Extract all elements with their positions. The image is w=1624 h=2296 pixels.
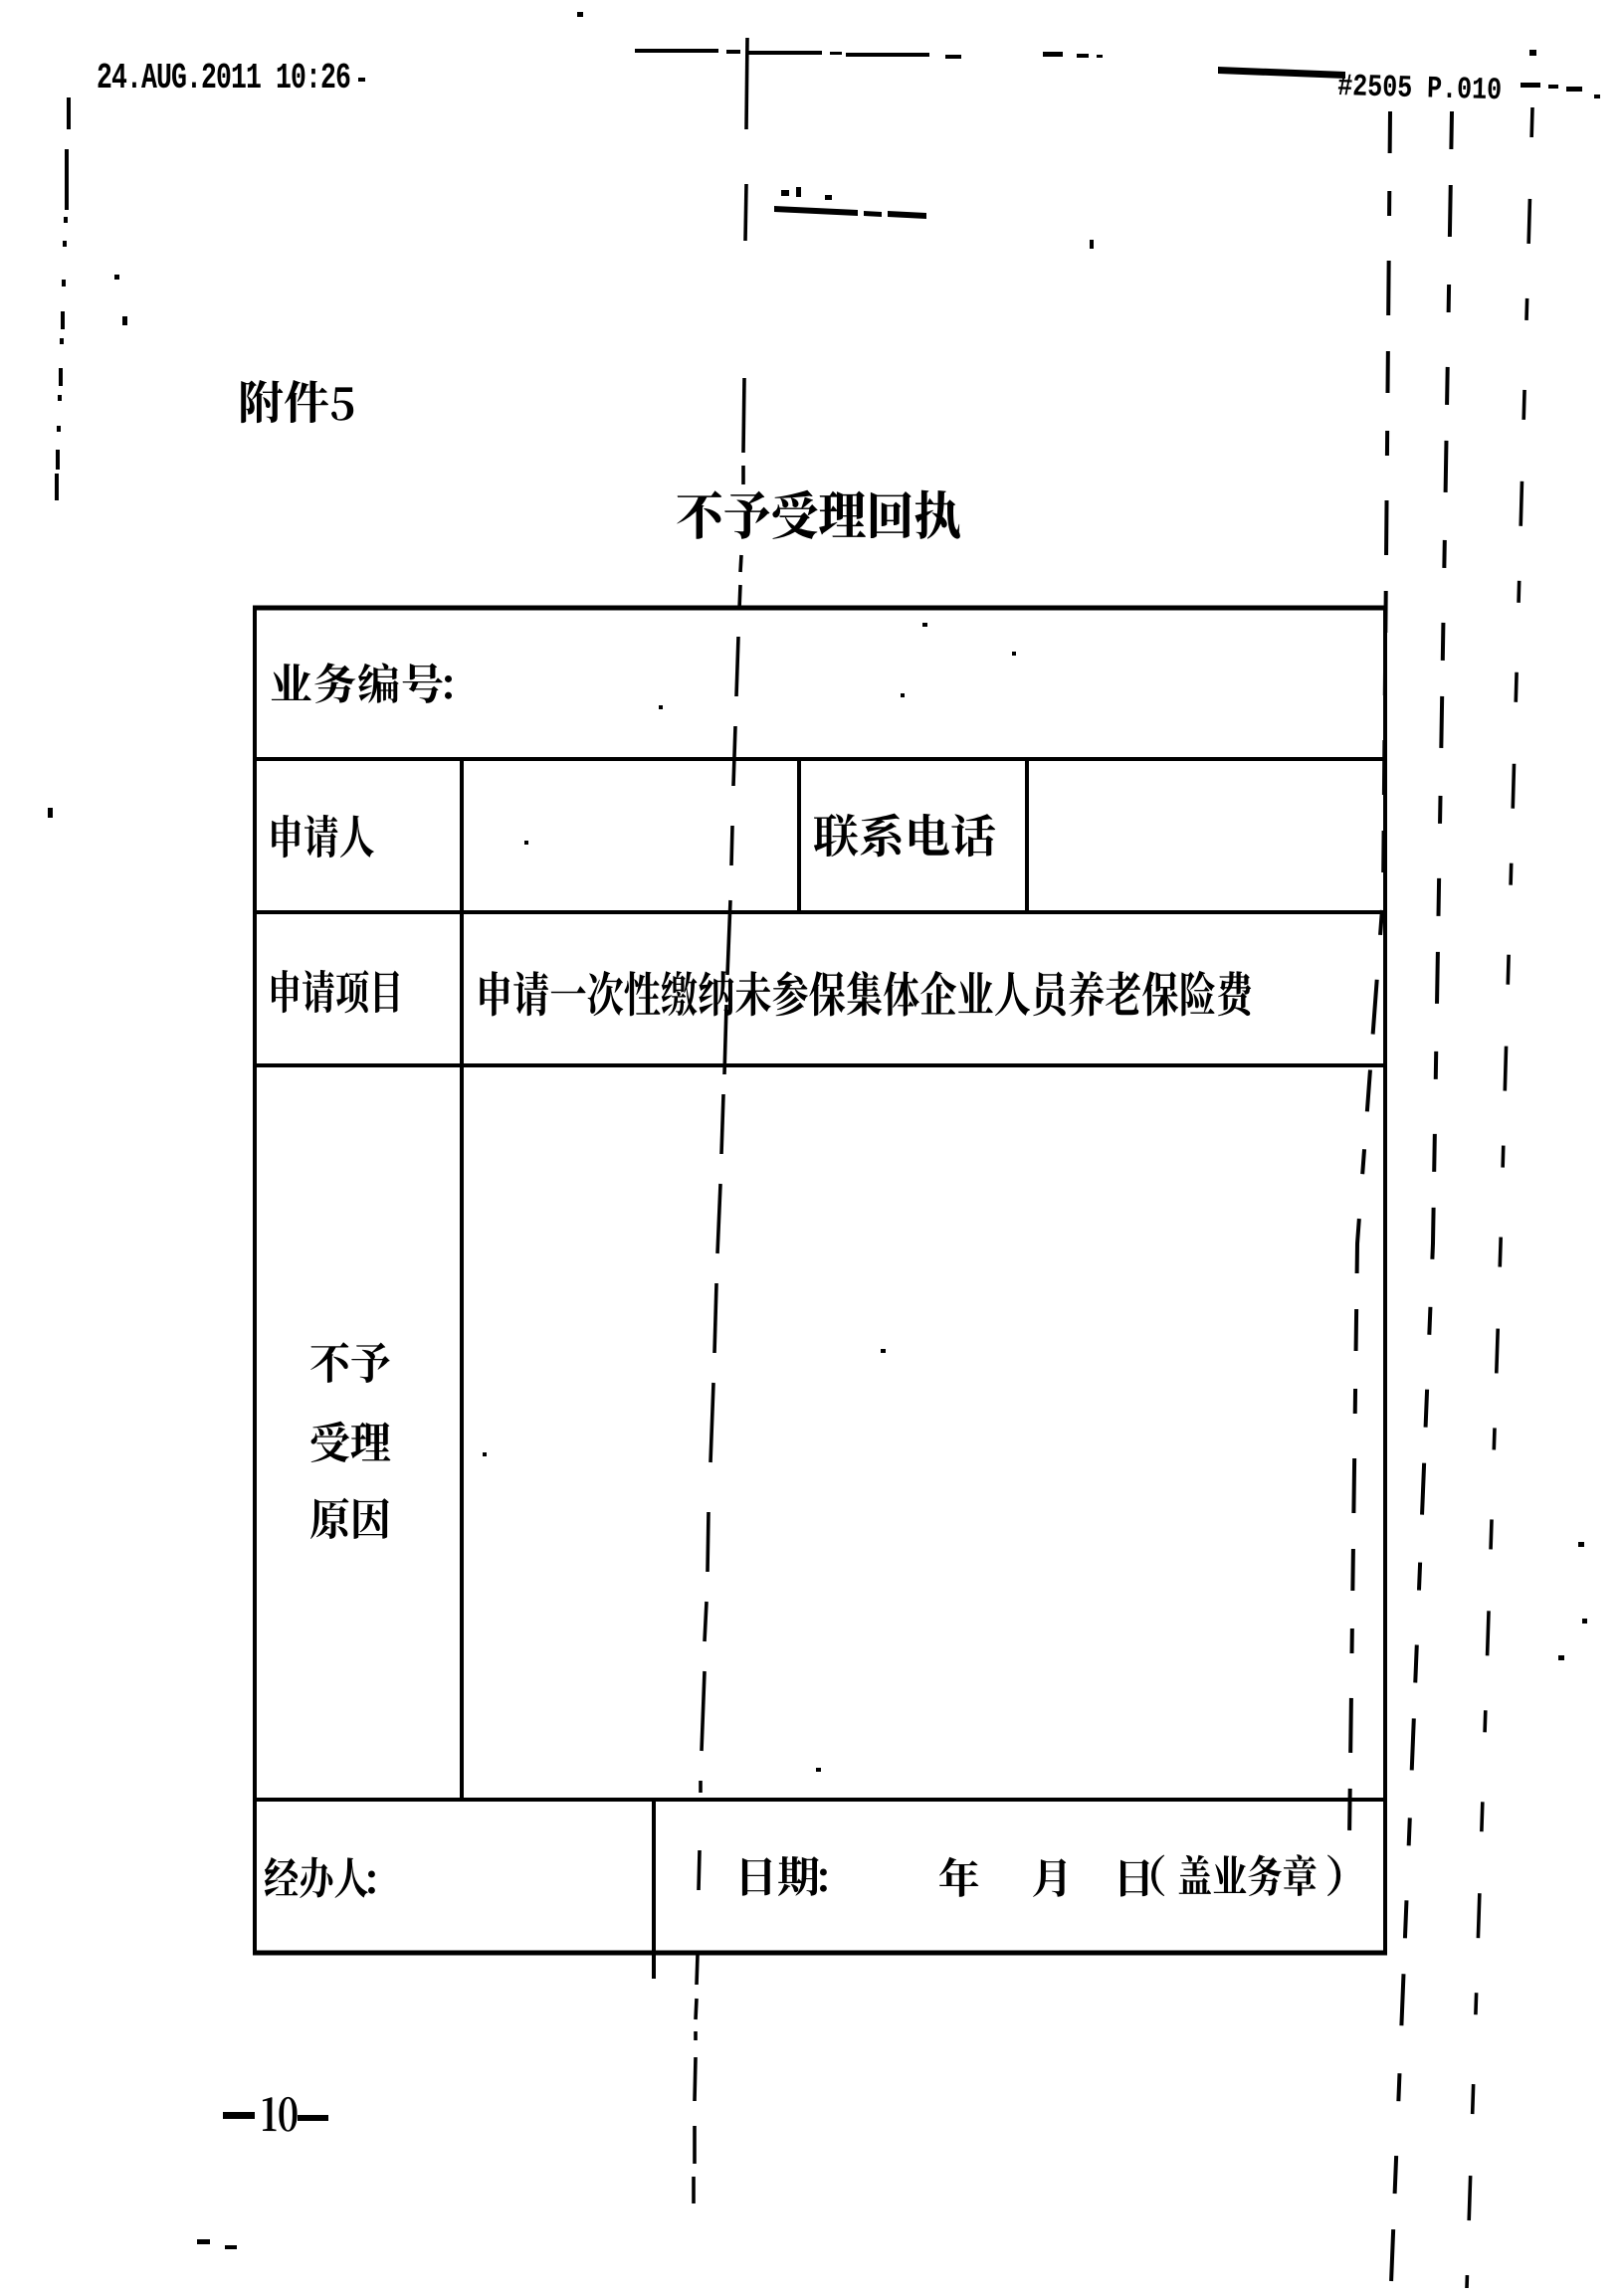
svg-text:#2505 P.010: #2505 P.010 [1337,70,1503,109]
svg-text:24.AUG.2011 10:26: 24.AUG.2011 10:26 [97,57,350,98]
